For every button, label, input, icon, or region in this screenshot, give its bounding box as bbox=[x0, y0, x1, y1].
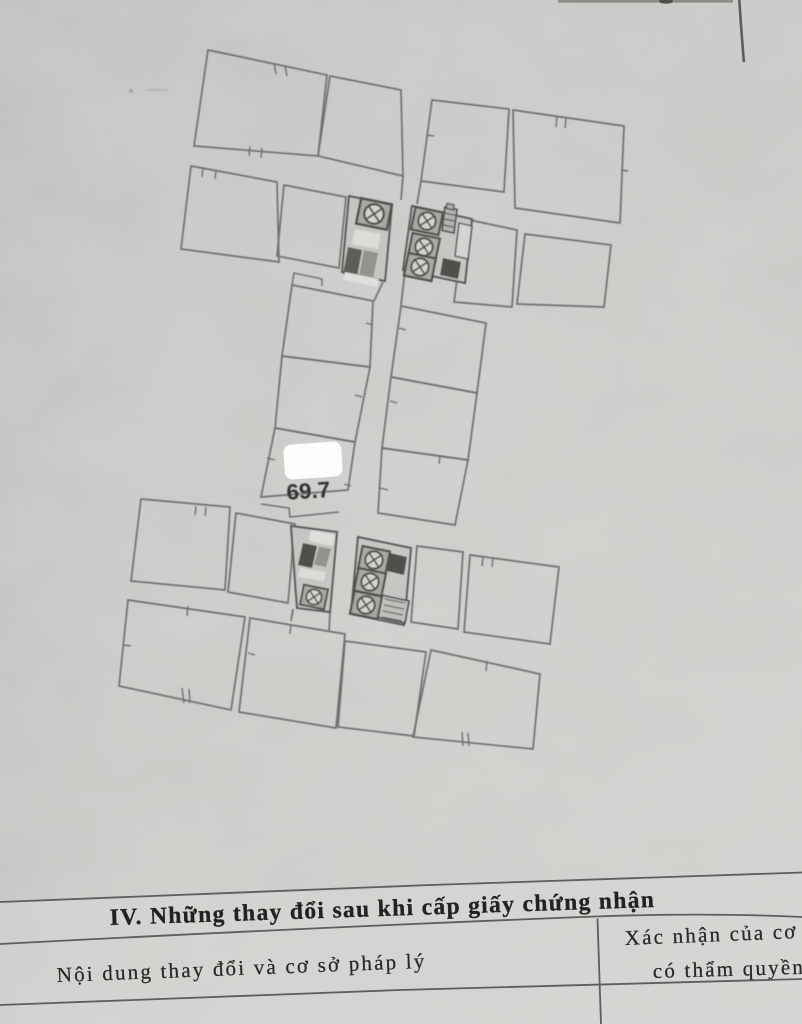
svg-text:69.7: 69.7 bbox=[286, 477, 331, 505]
